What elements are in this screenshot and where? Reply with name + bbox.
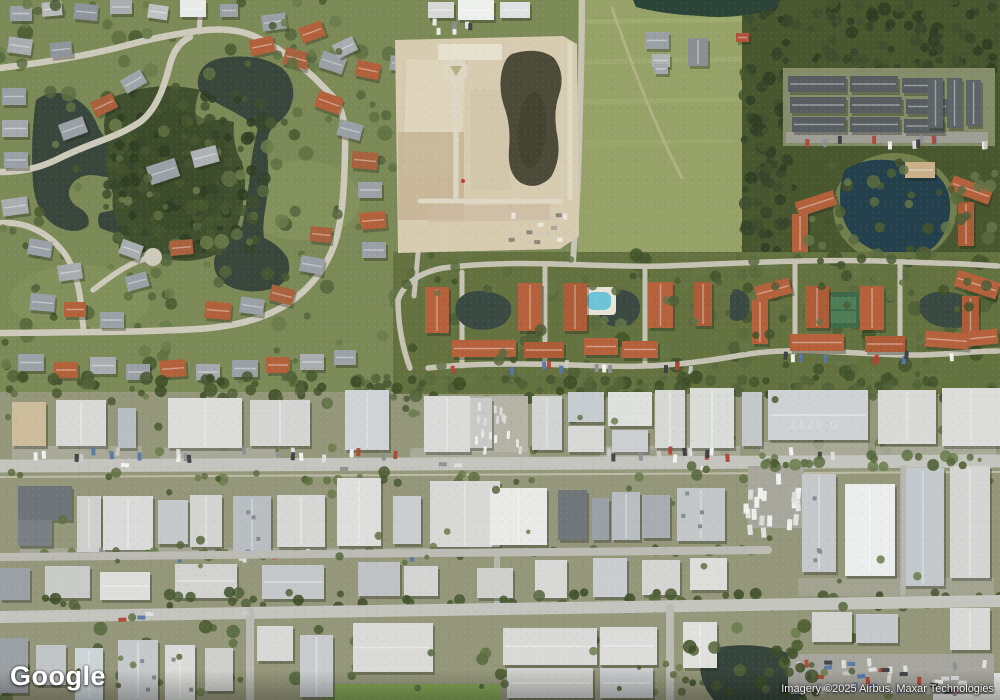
- svg-text:2125 G: 2125 G: [790, 420, 841, 431]
- swimming-pool: [587, 292, 611, 310]
- satellite-imagery: 2125 G: [0, 0, 1000, 700]
- imagery-attribution: Imagery ©2025 Airbus, Maxar Technologies: [781, 683, 994, 695]
- google-logo[interactable]: Google: [10, 661, 106, 692]
- satellite-map[interactable]: 2125 G Google Imagery ©2025 Airbus, Maxa…: [0, 0, 1000, 700]
- roof-address-label: 2125 G: [790, 420, 841, 431]
- condo-pond: [455, 291, 511, 330]
- tennis-court-inner: [830, 311, 856, 323]
- construction-patch: [438, 44, 502, 60]
- road-a: [0, 461, 1000, 466]
- tennis-court-inner: [830, 297, 856, 309]
- culdesac: [144, 248, 162, 266]
- lawn-bottom: [322, 684, 500, 700]
- construction-patch: [428, 204, 550, 222]
- equipment-marker: [461, 179, 465, 183]
- site-entry-structures: [428, 0, 532, 23]
- townhome-buildings: [788, 76, 983, 136]
- parking-apron: [760, 442, 868, 456]
